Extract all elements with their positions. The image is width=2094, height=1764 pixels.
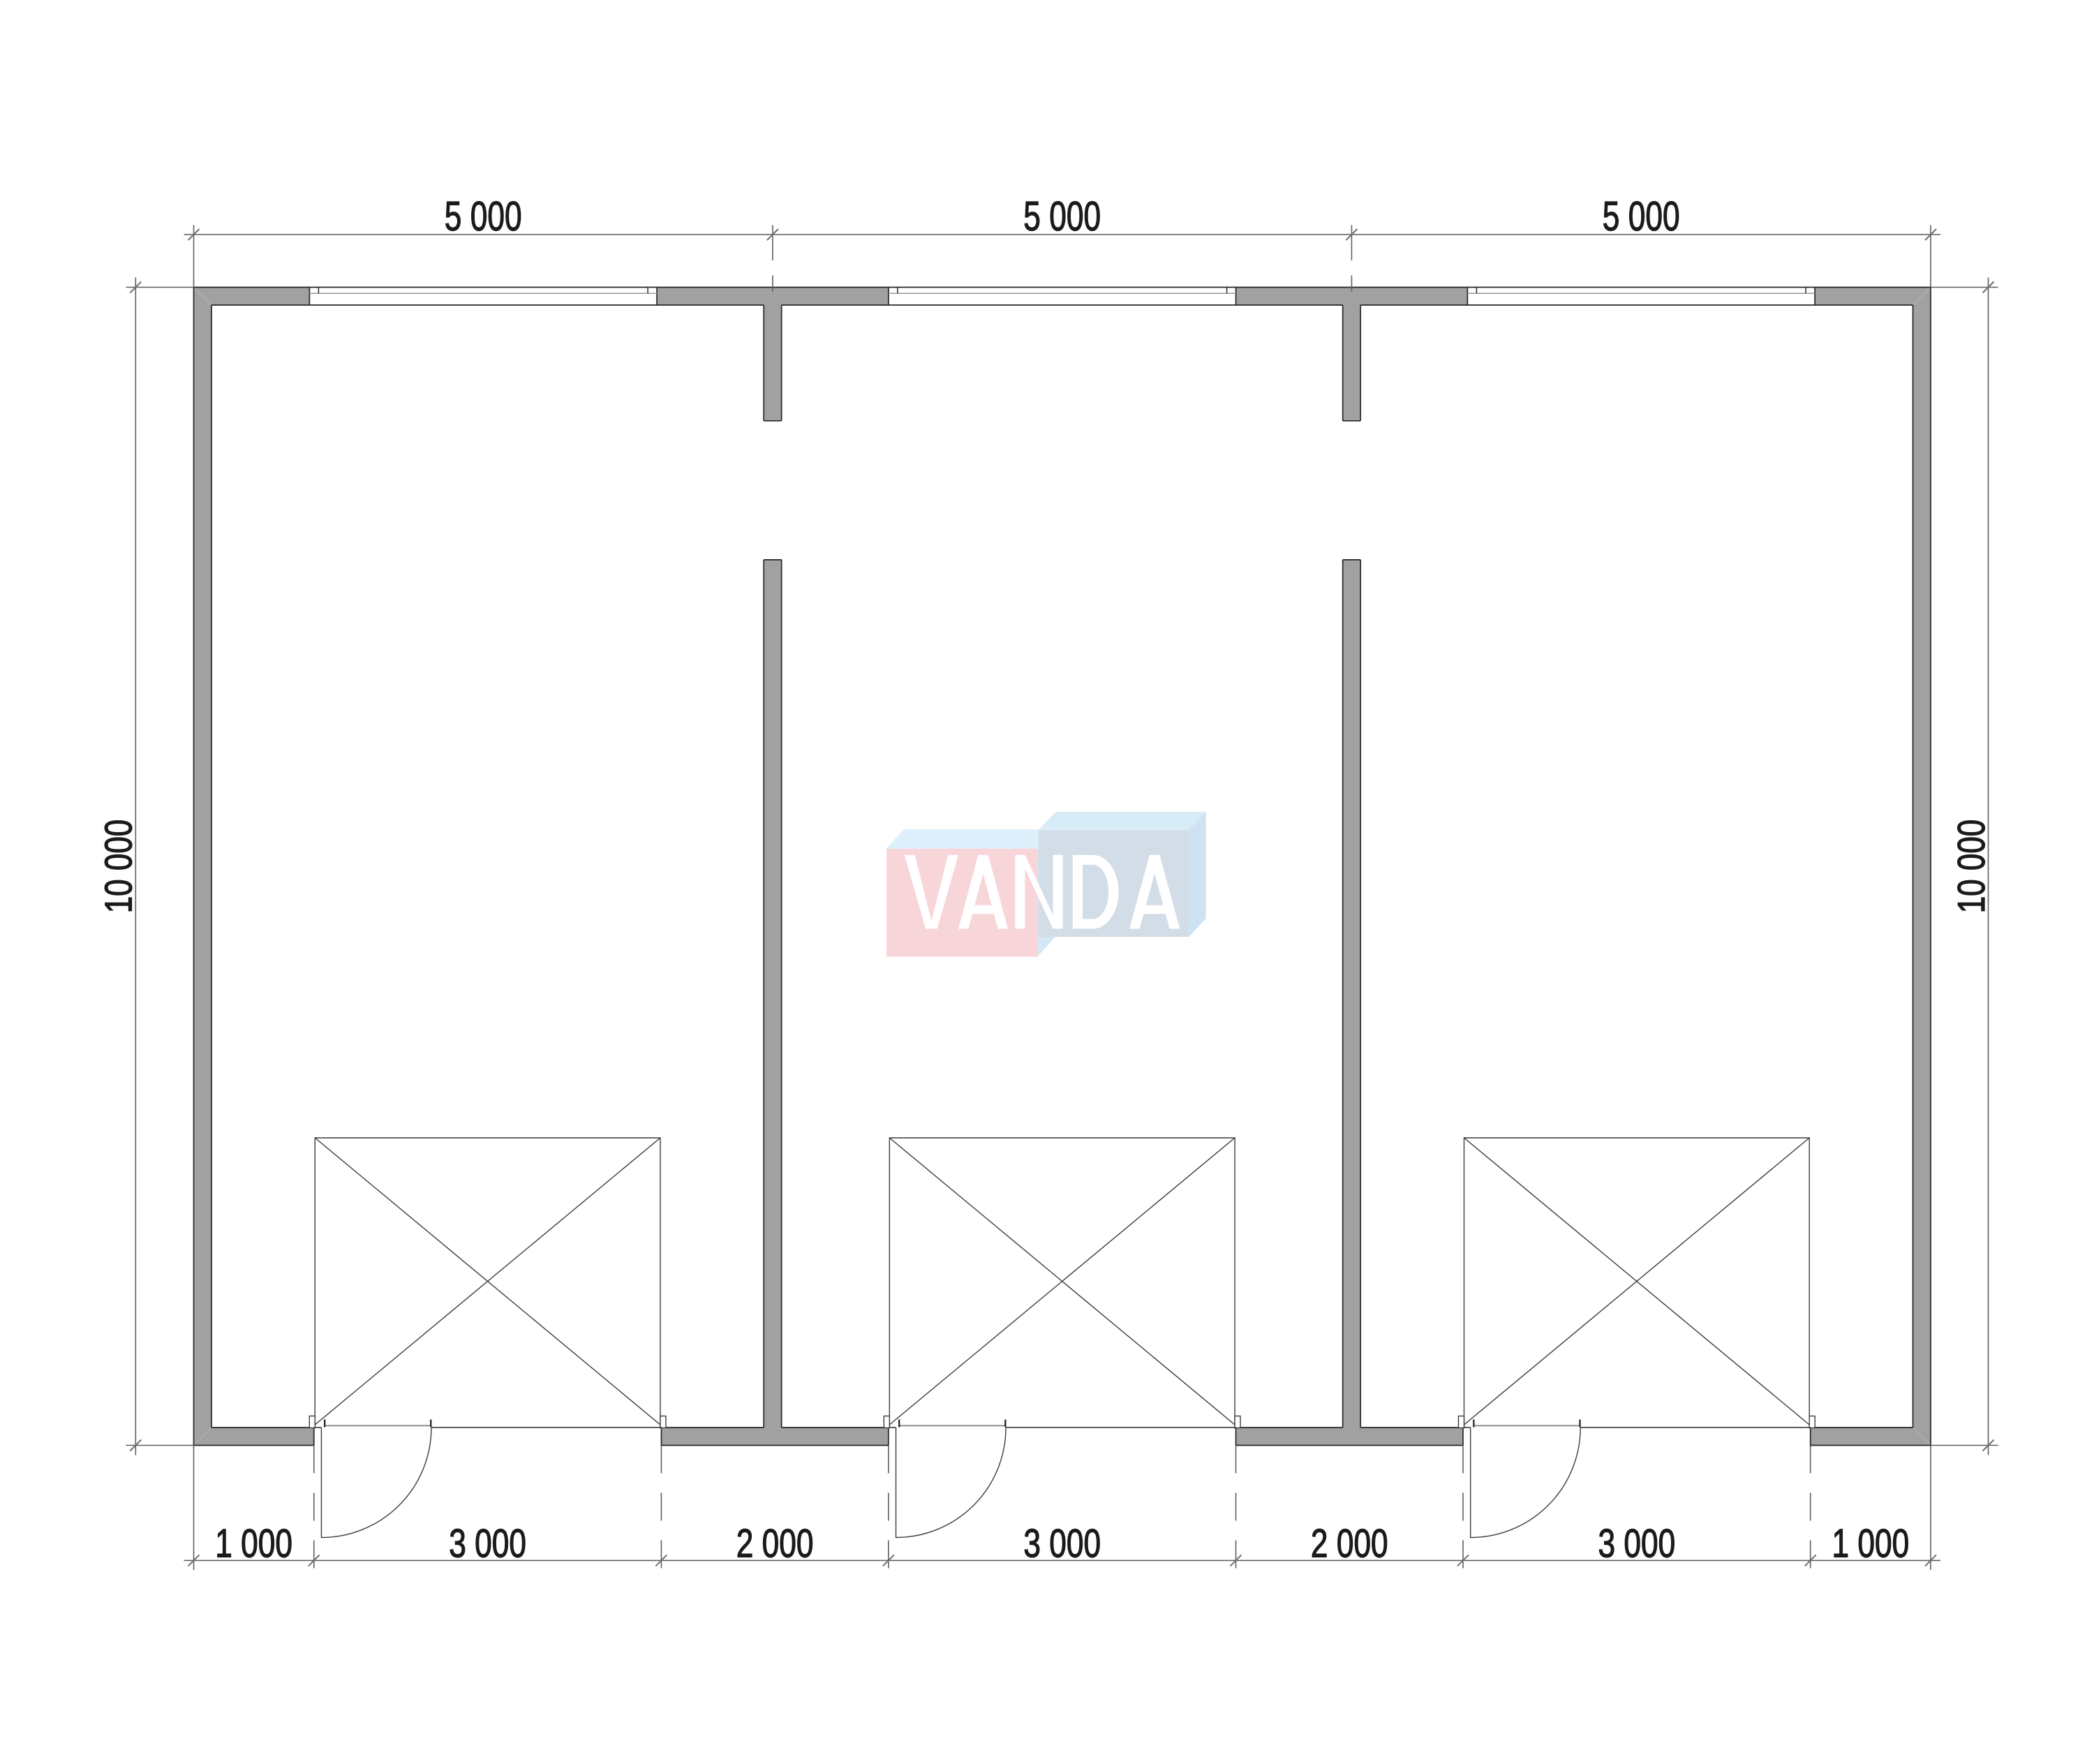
svg-text:3 000: 3 000 xyxy=(1023,1521,1101,1566)
svg-text:2 000: 2 000 xyxy=(736,1521,814,1566)
svg-text:5 000: 5 000 xyxy=(1603,194,1680,240)
svg-text:3 000: 3 000 xyxy=(449,1521,526,1566)
svg-text:10 000: 10 000 xyxy=(1950,820,1993,914)
svg-text:1 000: 1 000 xyxy=(1832,1521,1909,1566)
svg-text:5 000: 5 000 xyxy=(445,194,522,240)
svg-text:1 000: 1 000 xyxy=(215,1521,292,1566)
svg-text:5 000: 5 000 xyxy=(1023,194,1101,240)
svg-text:2 000: 2 000 xyxy=(1311,1521,1388,1566)
svg-text:10 000: 10 000 xyxy=(97,820,140,914)
svg-text:3 000: 3 000 xyxy=(1598,1521,1675,1566)
